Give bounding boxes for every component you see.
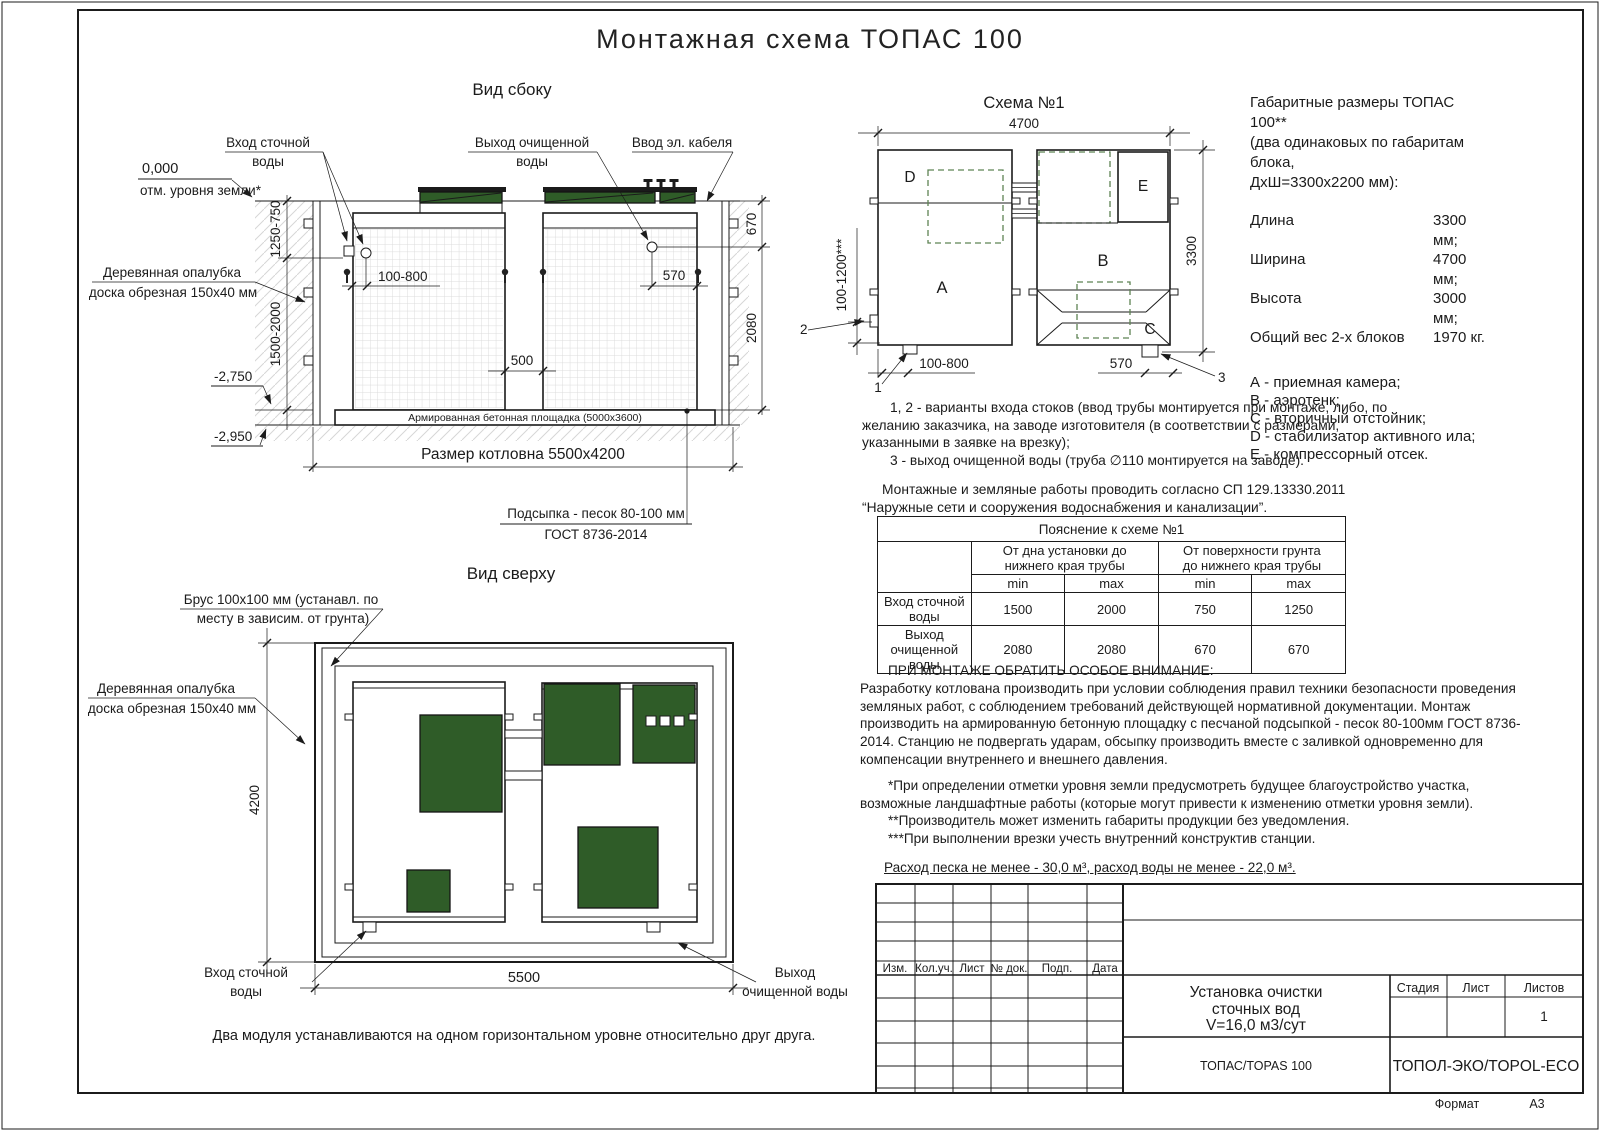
top-lid-1: [420, 715, 502, 812]
formwork-callout-top: Деревянная опалубка доска обрезная 150х4…: [88, 681, 305, 744]
vent-stacks: [644, 179, 679, 188]
ground-note: отм. уровня земли*: [140, 183, 262, 198]
inlet-pipe: [361, 248, 371, 258]
top-inlet-label-2: воды: [230, 984, 262, 999]
top-module-1: [353, 682, 505, 922]
top-module-2: [542, 683, 697, 922]
schema-title: Схема №1: [983, 94, 1064, 112]
marker-2: 2: [800, 322, 808, 337]
block-a-label: A: [936, 279, 947, 297]
block-b-label: B: [1097, 252, 1108, 270]
table-title: Пояснение к схеме №1: [878, 517, 1346, 542]
tank-module-2: [543, 179, 697, 410]
stamp-doc-line2: сточных вод: [1212, 1001, 1300, 1018]
attention-title: ПРИ МОНТАЖЕ ОБРАТИТЬ ОСОБОЕ ВНИМАНИЕ:: [860, 662, 1538, 680]
specs-rows: Длина 3300 мм; Ширина 4700 мм; Высота 30…: [1250, 211, 1485, 348]
page-title: Монтажная схема ТОПАС 100: [360, 24, 1260, 55]
stamp-col-data: Дата: [1092, 963, 1118, 975]
dim-depth: 1500-2000: [268, 302, 283, 367]
table-min1: min: [971, 575, 1065, 593]
row-name: Вход сточной воды: [878, 593, 972, 626]
top-dim-width: 5500: [300, 964, 748, 995]
side-view-drawing: Вид сбоку: [89, 80, 770, 542]
top-outlet-label-1: Выход: [775, 965, 816, 980]
top-view-drawing: Вид сверху: [88, 564, 848, 1044]
note-outlet: 3 - выход очищенной воды (труба ∅110 мон…: [862, 452, 1418, 470]
spec-row: Длина 3300 мм;: [1250, 211, 1485, 250]
spec-name: Высота: [1250, 289, 1433, 328]
tank-module-1: [353, 187, 506, 410]
dim-gap: 500: [511, 353, 534, 368]
attention-body: Разработку котлована производить при усл…: [860, 680, 1538, 769]
table-corner-cell: [878, 542, 972, 593]
slab-label: Армированная бетонная площадка (5000х360…: [408, 412, 642, 424]
dim-4200: 4200: [247, 785, 262, 815]
row-cell: 1500: [971, 593, 1065, 626]
stamp-doc-line3: V=16,0 м3/сут: [1206, 1017, 1306, 1034]
schema-dim-left: 100-1200***: [834, 238, 849, 312]
attention-note3: ***При выполнении врезки учесть внутренн…: [860, 830, 1538, 848]
inlet-label-1: Вход сточной: [226, 135, 310, 150]
schema-block-left: D A: [870, 150, 1020, 354]
formwork-top-label-1: Деревянная опалубка: [97, 681, 236, 696]
explanation-table: Пояснение к схеме №1 От дна установки до…: [877, 516, 1346, 674]
level-minus-2750: -2,750: [214, 369, 252, 384]
spec-value: 1970 кг.: [1433, 328, 1485, 348]
stamp-col-koluch: Кол.уч.: [915, 963, 953, 975]
table-row: Вход сточной воды 1500 2000 750 1250: [878, 593, 1346, 626]
schema-dim-height: 3300: [1184, 236, 1199, 266]
stamp-doc-line1: Установка очистки: [1190, 984, 1323, 1001]
dim-body: 2080: [744, 313, 759, 343]
formwork-label-1: Деревянная опалубка: [103, 265, 242, 280]
dim-top: 670: [744, 213, 759, 236]
drawing-sheet: Вид сбоку: [0, 0, 1600, 1131]
table-group1: От дна установки донижнего края трубы: [971, 542, 1158, 575]
zero-mark: 0,000: [142, 161, 178, 177]
bedding-line1: Подсыпка - песок 80-100 мм: [507, 506, 685, 521]
spec-row: Общий вес 2-х блоков 1970 кг.: [1250, 328, 1485, 348]
stamp-sheets-label: Листов: [1524, 981, 1565, 995]
block-e-label: E: [1138, 178, 1148, 195]
zero-level-annotation: 0,000 отм. уровня земли*: [138, 161, 262, 198]
spec-value: 4700 мм;: [1433, 250, 1485, 289]
marker-3: 3: [1218, 370, 1226, 385]
table-group-row: От дна установки донижнего края трубы От…: [878, 542, 1346, 575]
row-cell: 750: [1158, 593, 1252, 626]
top-dim-height: 4200: [247, 628, 315, 975]
block-d-label: D: [904, 169, 915, 186]
stamp-col-izm: Изм.: [883, 963, 908, 975]
stamp-product: ТОПАС/TOPAS 100: [1200, 1059, 1312, 1073]
marker-1: 1: [874, 380, 882, 395]
outlet-label-2: воды: [516, 154, 548, 169]
table-max1: max: [1065, 575, 1159, 593]
dim-outlet: 570: [663, 268, 686, 283]
spec-value: 3000 мм;: [1433, 289, 1485, 328]
formwork-label-2: доска обрезная 150х40 мм: [89, 285, 257, 300]
pit-label: Размер котловна 5500х4200: [421, 446, 625, 463]
table-min2: min: [1158, 575, 1252, 593]
specs-title-1: Габаритные размеры ТОПАС 100**: [1250, 93, 1485, 133]
table-max2: max: [1252, 575, 1346, 593]
schema-notes: 1, 2 - варианты входа стоков (ввод трубы…: [862, 399, 1418, 517]
stamp-stage-label: Стадия: [1397, 981, 1440, 995]
format-label: Формат: [1435, 1097, 1480, 1111]
inlet-label-2: воды: [252, 154, 284, 169]
block-c-label: C: [1144, 321, 1155, 338]
side-view-title: Вид сбоку: [472, 80, 552, 99]
note-variants: 1, 2 - варианты входа стоков (ввод трубы…: [862, 399, 1418, 452]
spec-name: Общий вес 2-х блоков: [1250, 328, 1433, 348]
spec-value: 3300 мм;: [1433, 211, 1485, 250]
table-title-row: Пояснение к схеме №1: [878, 517, 1346, 542]
specs-title-2: (два одинаковых по габаритам блока,: [1250, 133, 1485, 173]
note-mounting: Монтажные и земляные работы проводить со…: [862, 481, 1418, 516]
schema-dim-outlet: 570: [1110, 356, 1133, 371]
stamp-col-ndok: № док.: [991, 963, 1028, 975]
spec-row: Ширина 4700 мм;: [1250, 250, 1485, 289]
legend-item: А - приемная камера;: [1250, 374, 1485, 392]
attention-block: ПРИ МОНТАЖЕ ОБРАТИТЬ ОСОБОЕ ВНИМАНИЕ: Ра…: [860, 662, 1538, 877]
stamp-sheets-value: 1: [1540, 1009, 1548, 1024]
table-group2: От поверхности грунтадо нижнего края тру…: [1158, 542, 1345, 575]
level-minus-2950: -2,950: [214, 429, 252, 444]
top-view-title: Вид сверху: [467, 564, 556, 583]
stamp-company: ТОПОЛ-ЭКО/TOPOL-ECO: [1393, 1058, 1580, 1075]
spec-row: Высота 3000 мм;: [1250, 289, 1485, 328]
schema-dim-width: 4700: [1009, 116, 1039, 131]
attention-note1: *При определении отметки уровня земли пр…: [860, 777, 1538, 813]
top-lid-3: [544, 684, 620, 765]
schema-dim-inlet: 100-800: [919, 356, 969, 371]
schema-drawing: Схема №1 4700 D A: [800, 94, 1226, 395]
top-view-note: Два модуля устанавливаются на одном гори…: [213, 1028, 816, 1044]
title-block: Изм. Кол.уч. Лист № док. Подп. Дата Уста…: [876, 884, 1583, 1111]
beam-label-2: месту в зависим. от грунта): [197, 611, 369, 626]
row-cell: 2000: [1065, 593, 1159, 626]
dim-cover: 1250-750: [268, 200, 283, 257]
top-lid-2: [407, 870, 450, 912]
spec-name: Длина: [1250, 211, 1433, 250]
top-lid-5: [578, 827, 658, 908]
stamp-sheet-label: Лист: [1462, 981, 1489, 995]
attention-note2: **Производитель может изменить габариты …: [860, 812, 1538, 830]
dim-5500: 5500: [508, 970, 540, 986]
spec-name: Ширина: [1250, 250, 1433, 289]
stamp-col-podp: Подп.: [1042, 963, 1073, 975]
outlet-pipe: [647, 242, 657, 252]
inlet-fitting: [344, 246, 354, 256]
top-inlet-label-1: Вход сточной: [204, 965, 288, 980]
outlet-label-1: Выход очищенной: [475, 135, 589, 150]
bedding-line2: ГОСТ 8736-2014: [545, 527, 648, 542]
dim-inlet: 100-800: [378, 269, 428, 284]
row-cell: 1250: [1252, 593, 1346, 626]
cable-label: Ввод эл. кабеля: [632, 135, 732, 150]
formwork-top-label-2: доска обрезная 150х40 мм: [88, 701, 256, 716]
stamp-col-list: Лист: [960, 963, 986, 975]
beam-label-1: Брус 100х100 мм (устанавл. по: [184, 592, 379, 607]
specs-title-3: ДхШ=3300х2200 мм):: [1250, 173, 1485, 193]
schema-block-right: E B C: [1029, 150, 1178, 357]
format-value: А3: [1529, 1097, 1544, 1111]
consumption-note: Расход песка не менее - 30,0 м³, расход …: [884, 859, 1538, 877]
top-outlet-label-2: очищенной воды: [742, 984, 848, 999]
